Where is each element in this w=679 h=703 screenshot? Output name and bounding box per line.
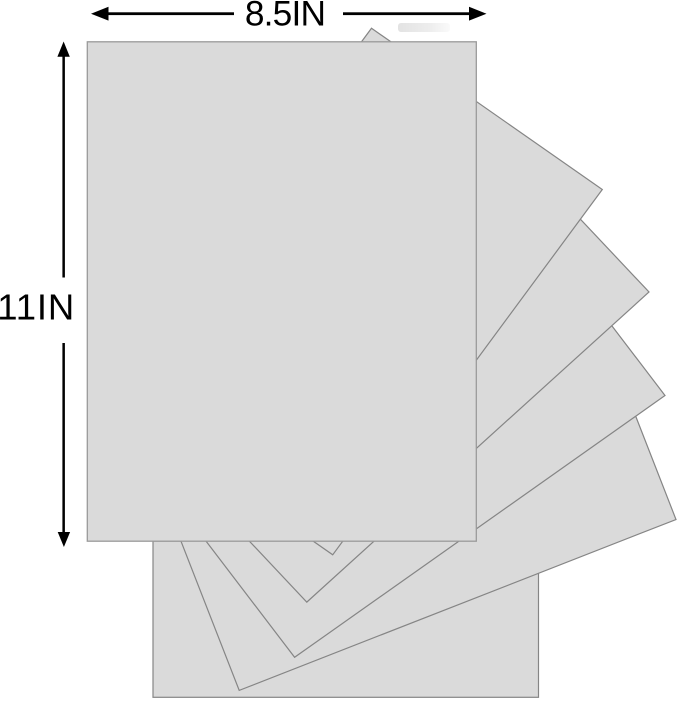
svg-text:11IN: 11IN <box>0 287 75 328</box>
svg-text:8.5IN: 8.5IN <box>245 0 325 34</box>
